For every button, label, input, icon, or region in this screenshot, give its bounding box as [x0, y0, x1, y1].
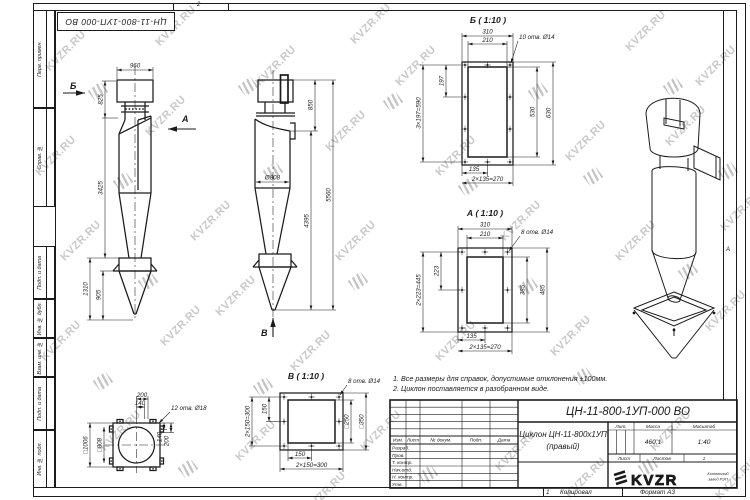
stamp-cell-podp-data-1: Подп. и дата	[33, 246, 55, 299]
sheets-value: 1	[703, 456, 706, 462]
stamp-cell-podp-data-2: Подп. и дата	[33, 377, 55, 430]
dim-b-197: 197	[439, 75, 446, 86]
stamp-label: Инв. № подл.	[34, 431, 47, 487]
technical-notes: 1. Все размеры для справок, допустимые о…	[393, 374, 728, 395]
dim-base-200-top: 200	[136, 392, 148, 399]
dim-base-808: □808	[97, 437, 104, 452]
dim-b-135: 135	[469, 166, 480, 173]
front-bolt-dots	[125, 108, 144, 110]
col-izm: Изм.	[393, 438, 403, 444]
note-line-2: 2. Циклон поставляется в разобранном вид…	[393, 384, 728, 394]
zone-number-top: 2	[197, 2, 200, 8]
footer-format-label: Формат А3	[640, 489, 675, 496]
dim-a-2x135: 2×135=270	[468, 344, 501, 351]
base-holes-note: 12 отв. Ø18	[171, 405, 207, 412]
stamp-label: Инв. № дубл.	[34, 300, 47, 337]
row-nkontr: Н. контр.	[392, 475, 414, 481]
dim-b-210: 210	[481, 37, 493, 44]
product-variant: (правый)	[546, 442, 579, 451]
col-data: Дата	[497, 438, 511, 444]
dim-4395: 4395	[304, 214, 311, 228]
stamp-label: Подп. и дата	[34, 378, 47, 429]
dim-3425: 3425	[98, 181, 105, 195]
mass-label: Масса	[646, 424, 661, 430]
dim-905: 905	[96, 289, 103, 300]
drawing-sheet: { "watermark": { "text": "KVZR.RU" }, "f…	[0, 0, 750, 500]
view-a-geometry	[458, 248, 512, 332]
dim-base-1006: □1006	[83, 436, 90, 454]
dim-1310: 1310	[83, 282, 90, 296]
sheets-label: Листов	[652, 456, 671, 462]
view-v-holes-note: 8 отв. Ø14	[348, 378, 381, 385]
scale-label: Масштаб	[693, 424, 716, 430]
side-view: Ø808 850 4395 5560 В	[232, 55, 372, 351]
scale-value: 1:40	[698, 439, 711, 446]
stamp-label: Перв. примен.	[34, 11, 47, 107]
dim-v-250: □250	[344, 414, 351, 429]
dim-960: 960	[130, 63, 141, 70]
view-a-title: А ( 1:10 )	[466, 208, 503, 218]
view-a-flange: А ( 1:10 ) 310 210 8 отв. Ø14 223 2×223=…	[415, 205, 590, 365]
stamp-label: Подп. и дата	[34, 247, 47, 298]
dim-v-2x150-bottom: 2×150=300	[295, 462, 328, 469]
dim-base-140-top: 140	[135, 400, 146, 407]
view-direction-b: Б	[70, 81, 77, 91]
dim-a-2x223: 2×223=445	[416, 274, 423, 307]
dim-base-200-right: 200	[164, 435, 171, 447]
stamp-cell-inv-dubl: Инв. № дубл.	[33, 299, 55, 338]
view-a-holes-note: 8 отв. Ø14	[521, 229, 554, 236]
logo-sub-1: Котельный	[707, 471, 729, 476]
row-nachotd: Нач.отд.	[392, 467, 412, 473]
lit-label: Лит.	[614, 424, 626, 430]
dim-b-630: 630	[546, 107, 553, 118]
stamp-label: Взам. инв. №	[34, 339, 47, 376]
dim-a-223: 223	[434, 265, 441, 277]
view-v-title: В ( 1:10 )	[288, 371, 324, 381]
view-v-holes	[281, 394, 342, 449]
zone-number-bottom: 1	[546, 489, 550, 496]
dim-d808: Ø808	[264, 175, 281, 182]
view-b-holes-note: 10 отв. Ø14	[519, 34, 555, 41]
kvzr-logo: KVZR Котельный завод РЭП	[614, 471, 729, 489]
view-b-holes	[462, 62, 513, 165]
dim-850: 850	[308, 99, 315, 110]
view-v-geometry	[280, 393, 343, 450]
dim-a-135: 135	[466, 333, 477, 340]
reference-designation: ЦН-11-800-1УП-000 ВО	[65, 17, 167, 27]
dim-a-210: 210	[479, 231, 491, 238]
view-b-flange: Б ( 1:10 ) 310 210 10 отв. Ø14 197 3×197…	[403, 12, 581, 196]
row-prov: Пров.	[392, 453, 405, 459]
stamp-cell-sprav-no: Справ. №	[33, 108, 55, 207]
iso-3d-view	[598, 68, 728, 364]
logo-sub-2: завод РЭП	[707, 477, 728, 482]
side-dim-lines	[256, 80, 336, 310]
dim-base-140-right: 140	[157, 431, 164, 442]
col-list: Лист	[406, 438, 419, 444]
stamp-label: Справ. №	[34, 109, 47, 206]
dim-5560: 5560	[326, 188, 333, 202]
dim-825: 825	[98, 94, 105, 105]
stamp-cell-perv-primen: Перв. примен.	[33, 10, 55, 108]
zone-tick	[228, 3, 229, 10]
base-centerlines	[105, 415, 168, 473]
reference-designation-box: ЦН-11-800-1УП-000 ВО	[57, 12, 175, 31]
dim-b-530: 530	[530, 106, 537, 117]
zone-tick	[173, 3, 174, 10]
side-geometry	[253, 75, 297, 310]
col-podp: Подп.	[470, 438, 483, 444]
stamp-cell-inv-podl: Инв. № подл.	[33, 430, 55, 488]
view-b-geometry	[462, 62, 513, 165]
dim-b-2x135: 2×135=270	[471, 176, 504, 183]
stamp-cell-vzam-inv: Взам. инв. №	[33, 338, 55, 377]
dim-a-310: 310	[480, 222, 491, 229]
dim-a-485: 485	[540, 284, 547, 295]
view-b-title: Б ( 1:10 )	[470, 15, 506, 25]
dim-a-385: 385	[520, 284, 527, 295]
base-flange-view: 200 140 12 отв. Ø18 □1006 □808 140 200	[78, 385, 283, 485]
iso-geometry	[634, 98, 720, 358]
view-direction-v: В	[261, 328, 268, 338]
row-utv: Утв.	[392, 482, 403, 488]
dim-b-3x197: 3×197=590	[416, 97, 423, 129]
logo-text: KVZR	[631, 472, 678, 489]
doc-number: ЦН-11-800-1УП-000 ВО	[566, 406, 690, 418]
front-view: 960 825 3425 1310 905 Б А	[58, 58, 258, 350]
mass-value: 460,1	[645, 439, 662, 446]
footer-copy-label: Копировал	[560, 489, 592, 496]
dim-b-310: 310	[482, 29, 493, 36]
dim-v-150-bottom: 150	[295, 451, 306, 458]
sheet-label: Лист	[617, 456, 630, 462]
row-tkontr: Т. контр.	[392, 460, 413, 466]
view-direction-a: А	[181, 114, 189, 124]
dim-v-350: □350	[359, 414, 366, 429]
front-view-arrows	[63, 93, 196, 129]
title-block: ЦН-11-800-1УП-000 ВО Изм. Лист № докум. …	[388, 398, 742, 498]
note-line-1: 1. Все размеры для справок, допустимые о…	[393, 374, 728, 384]
col-dokum: № докум.	[430, 438, 451, 444]
product-name: Циклон ЦН-11-800х1УП	[519, 430, 607, 439]
view-a-dim-lines	[420, 226, 550, 354]
row-razrab: Разраб.	[392, 446, 409, 452]
